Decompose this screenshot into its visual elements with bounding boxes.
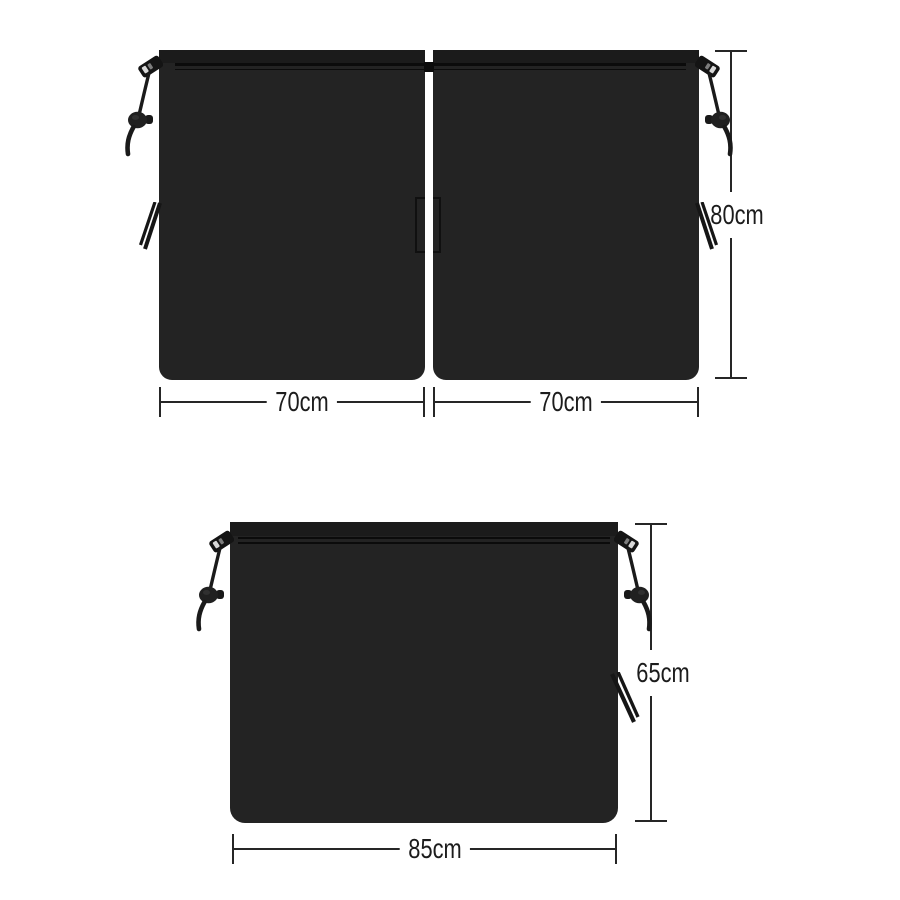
drawstring-tail bbox=[128, 127, 134, 154]
zipper-pull-right-icon bbox=[694, 202, 722, 252]
curtain-panel-top-right bbox=[433, 50, 699, 380]
seam-line bbox=[175, 69, 425, 71]
curtain-panel-bottom bbox=[230, 522, 618, 823]
zipper-pull-left-icon bbox=[135, 202, 163, 252]
dimension-end-tick bbox=[697, 387, 699, 417]
panel-top-hem bbox=[159, 50, 425, 63]
dimension-end-tick bbox=[232, 834, 234, 864]
dimension-end-tick bbox=[615, 834, 617, 864]
seam-gap-connector bbox=[424, 62, 434, 72]
drawstring-cord bbox=[628, 548, 638, 588]
drawstring-cord bbox=[709, 73, 719, 113]
dimension-end-cap bbox=[635, 523, 667, 525]
drawstring-left-top-icon bbox=[121, 54, 163, 162]
dimension-label: 70cm bbox=[267, 385, 338, 419]
drawstring-tail bbox=[725, 127, 731, 154]
seam-line bbox=[238, 542, 610, 544]
zipper-pull-bottom-icon bbox=[604, 672, 640, 726]
drawstring-tail bbox=[644, 602, 650, 629]
dimension-end-tick bbox=[159, 387, 161, 417]
panel-top-hem bbox=[433, 50, 699, 63]
product-diagram: 80cm 70cm 70cm 65cm 85cm bbox=[0, 0, 900, 900]
drawstring-cord bbox=[211, 548, 221, 588]
drawstring-left-bottom-icon bbox=[192, 529, 234, 637]
drawstring-right-bottom-icon bbox=[614, 529, 656, 637]
dimension-end-cap bbox=[715, 50, 747, 52]
dimension-end-cap bbox=[715, 377, 747, 379]
dimension-end-cap bbox=[635, 820, 667, 822]
seam-line bbox=[238, 537, 610, 540]
dimension-label: 70cm bbox=[531, 385, 602, 419]
seam-line bbox=[433, 69, 686, 71]
panel-top-hem bbox=[230, 522, 618, 536]
panel-gap bbox=[425, 192, 433, 256]
dimension-label: 65cm bbox=[634, 650, 692, 696]
dimension-label: 85cm bbox=[399, 832, 470, 866]
drawstring-tail bbox=[199, 602, 205, 629]
drawstring-cord bbox=[140, 73, 150, 113]
seam-line bbox=[175, 63, 425, 66]
drawstring-right-top-icon bbox=[695, 54, 737, 162]
seam-line bbox=[433, 63, 686, 66]
dimension-end-tick bbox=[433, 387, 435, 417]
dimension-end-tick bbox=[423, 387, 425, 417]
curtain-panel-top-left bbox=[159, 50, 425, 380]
